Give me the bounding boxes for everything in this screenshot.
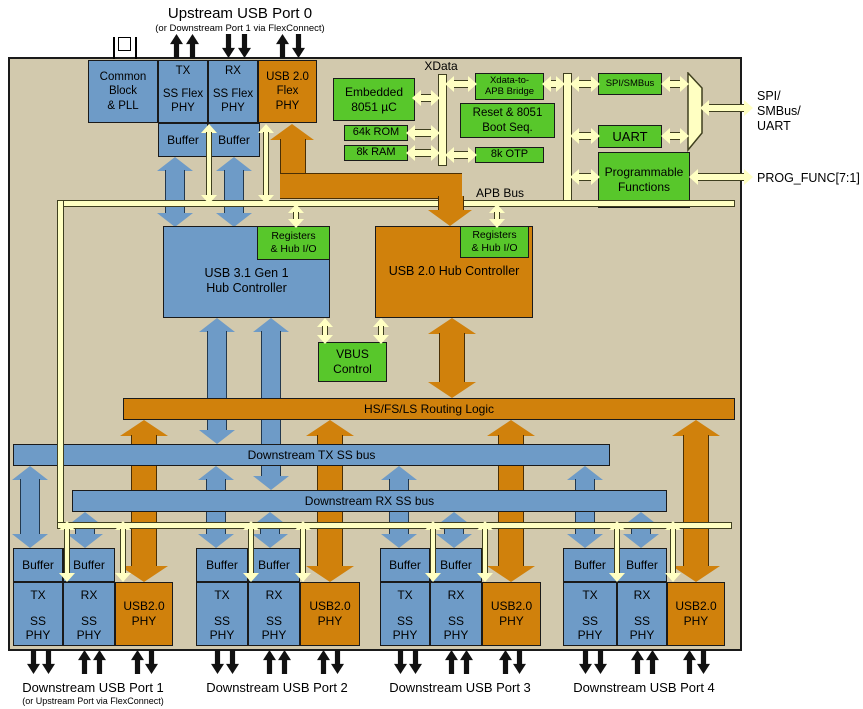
arrow-apb-port1-b bbox=[115, 521, 131, 582]
arrow-apb-registers-2 bbox=[489, 204, 505, 228]
arrow-hub2-routing bbox=[428, 318, 476, 398]
otp-label: 8k OTP bbox=[491, 148, 528, 161]
vbus-control: VBUS Control bbox=[318, 342, 387, 382]
spi-smbus-block: SPI/SMBus bbox=[598, 73, 662, 95]
buffer-label: Buffer bbox=[167, 133, 199, 148]
xdata-bus-label: XData bbox=[420, 59, 462, 73]
arrow-hub31-txbus bbox=[199, 318, 235, 444]
usb2-flex-phy: USB 2.0 Flex PHY bbox=[258, 60, 317, 123]
buffer-label: Buffer bbox=[626, 558, 658, 573]
arrow-apb-port4-b bbox=[665, 521, 681, 582]
ss-phy-label: SS PHY bbox=[262, 614, 287, 643]
downstream-rx-ss-bus: Downstream RX SS bus bbox=[72, 490, 667, 512]
arrow-apb-port3-b bbox=[477, 521, 493, 582]
arrow-xdata-bridge bbox=[445, 76, 477, 92]
port1-tx-arrow-2 bbox=[42, 650, 55, 674]
port2-rx-ss-phy: RXSS PHY bbox=[248, 582, 300, 646]
port1-label: Downstream USB Port 1 bbox=[0, 680, 193, 695]
port2-usb2-arrow-down bbox=[331, 650, 344, 674]
uart-label: UART bbox=[612, 129, 647, 145]
arrow-apb-port1-a bbox=[59, 521, 75, 582]
upstream-port-subtitle: (or Downstream Port 1 via FlexConnect) bbox=[90, 23, 390, 34]
ss-phy-label: SS PHY bbox=[77, 614, 102, 643]
arrow-xdata-otp bbox=[445, 147, 477, 163]
uart-block: UART bbox=[598, 125, 662, 148]
reset-label: Reset & 8051 Boot Seq. bbox=[473, 106, 543, 134]
port3-rx-arrow-1 bbox=[445, 650, 458, 674]
arrow-apb-uart bbox=[570, 128, 600, 144]
tx-label: TX bbox=[397, 588, 412, 603]
usb2-phy-label: USB2.0 PHY bbox=[123, 599, 164, 628]
arrow-prog-io bbox=[689, 169, 753, 185]
usb31-registers-hub-io: Registers & Hub I/O bbox=[257, 226, 330, 260]
arrow-hub31-vbus bbox=[317, 318, 333, 344]
routing-logic-label: HS/FS/LS Routing Logic bbox=[364, 402, 494, 417]
arrow-uart-mux bbox=[661, 128, 689, 144]
usb2-elbow-head-down bbox=[428, 210, 472, 226]
usb2-elbow-horizontal bbox=[280, 173, 462, 199]
port2-rx-arrow-1 bbox=[263, 650, 276, 674]
port0-rx-arrow-2 bbox=[238, 34, 251, 58]
port1-usb2-phy: USB2.0 PHY bbox=[115, 582, 173, 646]
ss-phy-label: SS PHY bbox=[444, 614, 469, 643]
arrow-apb-port4-a bbox=[609, 521, 625, 582]
usb31-hub-label: USB 3.1 Gen 1 Hub Controller bbox=[204, 266, 288, 297]
usb2-elbow-vertical-2 bbox=[438, 196, 464, 211]
arrow-txbus-buffer-1 bbox=[12, 466, 48, 548]
vbus-control-label: VBUS Control bbox=[333, 347, 372, 376]
programmable-functions-label: Programmable Functions bbox=[605, 165, 684, 194]
crystal-icon bbox=[104, 33, 148, 59]
registers-label: Registers & Hub I/O bbox=[270, 230, 316, 256]
arrow-apb-port2-a bbox=[243, 521, 259, 582]
port4-rx-arrow-1 bbox=[631, 650, 644, 674]
ss-phy-label: SS PHY bbox=[26, 614, 51, 643]
ram-label: 8k RAM bbox=[356, 146, 395, 159]
ss-phy-label: SS PHY bbox=[578, 614, 603, 643]
port2-tx-ss-phy: TXSS PHY bbox=[196, 582, 248, 646]
usb2-phy-label: USB2.0 PHY bbox=[309, 599, 350, 628]
common-block-pll: Common Block & PLL bbox=[88, 60, 158, 123]
arrow-hub2-vbus bbox=[373, 318, 389, 344]
tx-label: TX bbox=[582, 588, 597, 603]
port1-usb2-arrow-up bbox=[131, 650, 144, 674]
spi-smbus-label: SPI/SMBus bbox=[606, 78, 655, 90]
rx-label: RX bbox=[81, 588, 98, 603]
tx-ss-flex-phy: TX SS Flex PHY bbox=[158, 60, 208, 123]
port4-tx-arrow-1 bbox=[579, 650, 592, 674]
port1-tx-buffer: Buffer bbox=[13, 548, 63, 582]
buffer-label: Buffer bbox=[389, 558, 421, 573]
port1-sublabel: (or Upstream Port via FlexConnect) bbox=[0, 696, 193, 707]
port2-label: Downstream USB Port 2 bbox=[177, 680, 377, 695]
buffer-label: Buffer bbox=[440, 558, 472, 573]
routing-logic-bar: HS/FS/LS Routing Logic bbox=[123, 398, 735, 420]
arrow-apb-prog bbox=[570, 169, 600, 185]
tx-label: TX bbox=[214, 588, 229, 603]
ss-flex-label: SS Flex PHY bbox=[163, 87, 203, 115]
ss-flex-label: SS Flex PHY bbox=[213, 87, 253, 115]
port1-rx-arrow-2 bbox=[93, 650, 106, 674]
ss-phy-label: SS PHY bbox=[210, 614, 235, 643]
arrow-rom-xdata bbox=[406, 125, 440, 141]
arrow-rxbus-buffer-4 bbox=[623, 512, 659, 548]
arrow-bridge-apb bbox=[542, 76, 565, 92]
port0-usb2-arrow-up bbox=[276, 34, 289, 58]
reset-boot-seq: Reset & 8051 Boot Seq. bbox=[460, 103, 555, 138]
arrow-spi-mux bbox=[661, 76, 689, 92]
buffer-label: Buffer bbox=[574, 558, 606, 573]
port3-label: Downstream USB Port 3 bbox=[360, 680, 560, 695]
downstream-tx-ss-bus: Downstream TX SS bus bbox=[13, 444, 610, 466]
embedded-8051: Embedded 8051 µC bbox=[333, 78, 415, 121]
arrow-apb-registers-1 bbox=[288, 204, 304, 228]
port1-rx-ss-phy: RXSS PHY bbox=[63, 582, 115, 646]
arrow-8051-xdata bbox=[412, 90, 440, 106]
usb2-hub-label: USB 2.0 Hub Controller bbox=[389, 264, 520, 279]
registers-label: Registers & Hub I/O bbox=[471, 229, 517, 255]
rx-ss-bus-label: Downstream RX SS bus bbox=[305, 494, 434, 509]
port3-tx-buffer: Buffer bbox=[380, 548, 430, 582]
port0-tx-arrow-1 bbox=[170, 34, 183, 58]
rx-label: RX bbox=[634, 588, 651, 603]
tx-label: TX bbox=[30, 588, 45, 603]
ss-phy-label: SS PHY bbox=[630, 614, 655, 643]
arrow-buffer-hub31-1 bbox=[157, 157, 193, 227]
usb2-phy-label: USB2.0 PHY bbox=[491, 599, 532, 628]
apb-bus-vertical-line bbox=[57, 200, 64, 529]
port2-usb2-phy: USB2.0 PHY bbox=[300, 582, 360, 646]
rx-ss-flex-phy: RX SS Flex PHY bbox=[208, 60, 258, 123]
port2-rx-arrow-2 bbox=[278, 650, 291, 674]
tx-label: TX bbox=[176, 64, 191, 78]
apb-distribution-line bbox=[57, 522, 732, 529]
port2-usb2-arrow-up bbox=[317, 650, 330, 674]
rom-64k: 64k ROM bbox=[344, 125, 408, 141]
port3-tx-arrow-2 bbox=[409, 650, 422, 674]
port1-tx-arrow-1 bbox=[27, 650, 40, 674]
rx-label: RX bbox=[266, 588, 283, 603]
rx-label: RX bbox=[448, 588, 465, 603]
usb2-phy-label: USB2.0 PHY bbox=[675, 599, 716, 628]
common-block-pll-label: Common Block & PLL bbox=[100, 70, 147, 112]
port3-rx-ss-phy: RXSS PHY bbox=[430, 582, 482, 646]
buffer-label: Buffer bbox=[22, 558, 54, 573]
port3-tx-arrow-1 bbox=[394, 650, 407, 674]
buffer-label: Buffer bbox=[258, 558, 290, 573]
arrow-buffer-hub31-2 bbox=[216, 157, 252, 227]
arrow-rxbus-buffer-3 bbox=[436, 512, 472, 548]
usb2-elbow-head-up bbox=[270, 124, 314, 140]
upstream-port-title: Upstream USB Port 0 bbox=[90, 5, 390, 23]
port4-rx-arrow-2 bbox=[646, 650, 659, 674]
port1-usb2-arrow-down bbox=[145, 650, 158, 674]
arrow-buffer-apb-1 bbox=[201, 124, 217, 204]
port0-tx-arrow-2 bbox=[186, 34, 199, 58]
port3-tx-ss-phy: TXSS PHY bbox=[380, 582, 430, 646]
embedded-8051-label: Embedded 8051 µC bbox=[345, 85, 403, 114]
arrow-mux-io bbox=[700, 100, 753, 116]
tx-ss-bus-label: Downstream TX SS bus bbox=[248, 448, 376, 463]
port4-tx-arrow-2 bbox=[594, 650, 607, 674]
usb2-registers-hub-io: Registers & Hub I/O bbox=[460, 226, 529, 258]
port3-usb2-arrow-down bbox=[513, 650, 526, 674]
port1-rx-arrow-1 bbox=[78, 650, 91, 674]
apb-bus-label: APB Bus bbox=[476, 186, 524, 200]
usb-hub-block-diagram: Upstream USB Port 0 (or Downstream Port … bbox=[0, 0, 863, 709]
rom-label: 64k ROM bbox=[353, 126, 399, 139]
port4-usb2-phy: USB2.0 PHY bbox=[667, 582, 725, 646]
buffer-label: Buffer bbox=[206, 558, 238, 573]
usb2-flex-phy-label: USB 2.0 Flex PHY bbox=[266, 70, 309, 112]
port3-rx-arrow-2 bbox=[460, 650, 473, 674]
bridge-label: Xdata-to- APB Bridge bbox=[485, 76, 534, 98]
arrow-apb-port2-b bbox=[295, 521, 311, 582]
port1-tx-ss-phy: TXSS PHY bbox=[13, 582, 63, 646]
port3-usb2-phy: USB2.0 PHY bbox=[482, 582, 541, 646]
apb-bus-horizontal-line bbox=[57, 200, 735, 207]
port4-tx-ss-phy: TXSS PHY bbox=[563, 582, 617, 646]
ss-phy-label: SS PHY bbox=[393, 614, 418, 643]
port0-rx-arrow-1 bbox=[222, 34, 235, 58]
io-spi-smbus-uart-label: SPI/ SMBus/ UART bbox=[757, 89, 801, 133]
buffer-label: Buffer bbox=[73, 558, 105, 573]
port4-usb2-arrow-up bbox=[683, 650, 696, 674]
ram-8k: 8k RAM bbox=[344, 145, 408, 161]
xdata-apb-bridge: Xdata-to- APB Bridge bbox=[475, 73, 544, 100]
otp-8k: 8k OTP bbox=[475, 147, 544, 163]
port4-rx-ss-phy: RXSS PHY bbox=[617, 582, 667, 646]
port2-tx-arrow-2 bbox=[226, 650, 239, 674]
port2-tx-arrow-1 bbox=[211, 650, 224, 674]
arrow-ram-xdata bbox=[406, 145, 440, 161]
buffer-label: Buffer bbox=[218, 133, 250, 148]
port3-usb2-arrow-up bbox=[499, 650, 512, 674]
arrow-apb-port3-a bbox=[425, 521, 441, 582]
io-prog-func-label: PROG_FUNC[7:1] bbox=[757, 171, 860, 186]
arrow-apb-spi bbox=[570, 76, 600, 92]
port0-usb2-arrow-down bbox=[292, 34, 305, 58]
port4-label: Downstream USB Port 4 bbox=[544, 680, 744, 695]
port2-tx-buffer: Buffer bbox=[196, 548, 248, 582]
rx-label: RX bbox=[225, 64, 241, 78]
port4-usb2-arrow-down bbox=[697, 650, 710, 674]
